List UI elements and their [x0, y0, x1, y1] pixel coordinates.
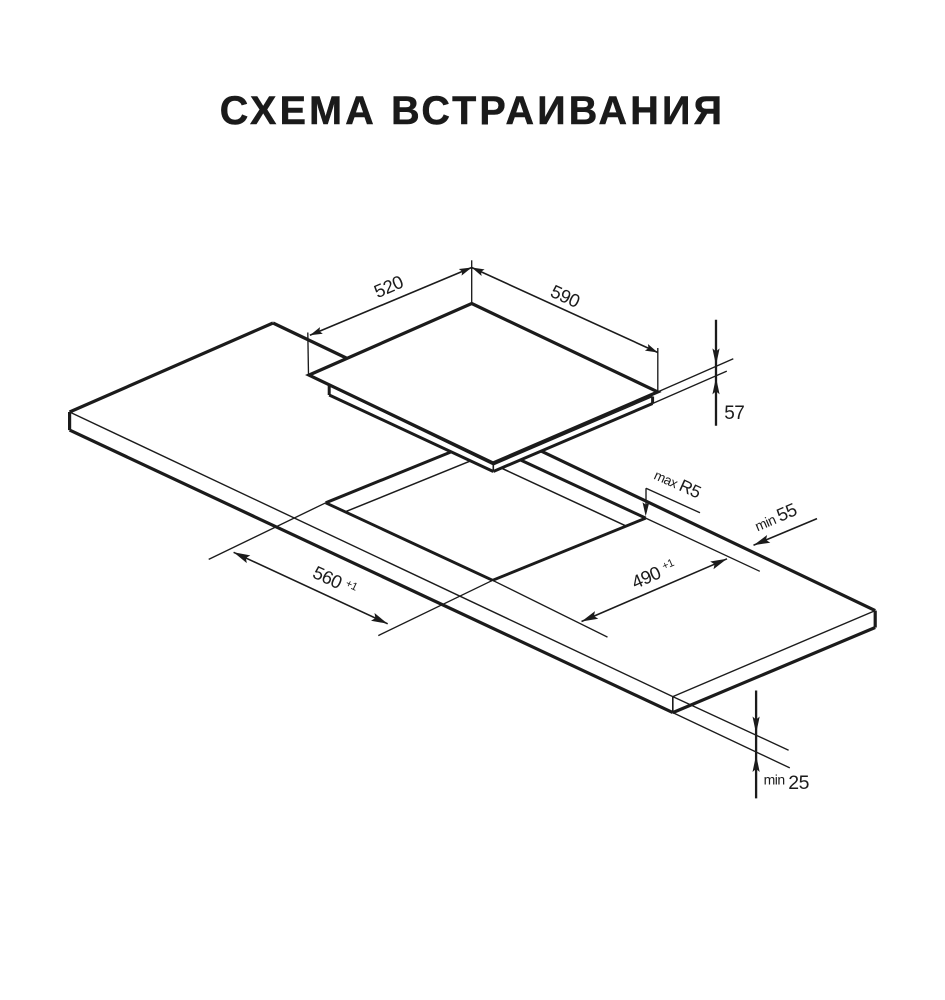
svg-text:560 +1: 560 +1: [310, 561, 361, 599]
svg-text:25: 25: [788, 772, 809, 794]
svg-text:590: 590: [547, 280, 583, 311]
svg-text:min: min: [764, 771, 785, 787]
svg-text:max R5: max R5: [651, 464, 704, 502]
svg-text:57: 57: [724, 403, 744, 424]
